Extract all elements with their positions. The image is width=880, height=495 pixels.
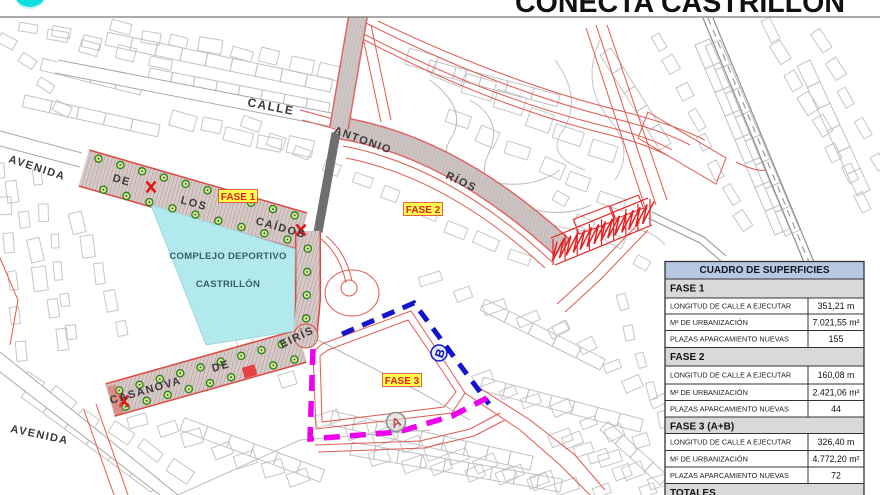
svg-text:7.021,55 m²: 7.021,55 m² [813,317,860,327]
svg-text:M² DE URBANIZACIÓN: M² DE URBANIZACIÓN [670,318,748,327]
svg-text:FASE 2: FASE 2 [670,352,705,363]
svg-text:326,40 m: 326,40 m [818,437,855,447]
svg-text:CASTRILLÓN: CASTRILLÓN [196,278,260,290]
svg-text:160,08 m: 160,08 m [818,370,855,380]
svg-text:FASE 1: FASE 1 [670,284,705,295]
svg-text:FASE 3 (A+B): FASE 3 (A+B) [670,422,734,433]
svg-text:44: 44 [831,404,841,414]
svg-text:LONGITUD DE CALLE A EJECUTAR: LONGITUD DE CALLE A EJECUTAR [670,371,791,380]
svg-text:FASE 2: FASE 2 [406,205,441,216]
svg-text:PLAZAS APARCAMIENTO NUEVAS: PLAZAS APARCAMIENTO NUEVAS [670,404,789,413]
svg-text:TOTALES: TOTALES [670,488,716,495]
svg-text:COMPLEJO DEPORTIVO: COMPLEJO DEPORTIVO [169,251,286,262]
svg-text:M² DE URBANIZACIÓN: M² DE URBANIZACIÓN [670,454,748,463]
svg-text:LONGITUD DE CALLE A EJECUTAR: LONGITUD DE CALLE A EJECUTAR [670,302,791,311]
svg-text:2.421,06 m²: 2.421,06 m² [813,387,860,397]
svg-text:351,21 m: 351,21 m [818,301,855,311]
svg-text:M² DE URBANIZACIÓN: M² DE URBANIZACIÓN [670,388,748,397]
svg-text:155: 155 [829,334,844,344]
svg-text:4.772,20 m²: 4.772,20 m² [813,454,860,464]
svg-text:CONECTA CASTRILLÓN: CONECTA CASTRILLÓN [515,0,845,19]
svg-text:72: 72 [831,470,841,480]
svg-text:FASE 1: FASE 1 [221,192,256,203]
svg-text:PLAZAS APARCAMIENTO NUEVAS: PLAZAS APARCAMIENTO NUEVAS [670,335,789,344]
svg-text:LONGITUD DE CALLE A EJECUTAR: LONGITUD DE CALLE A EJECUTAR [670,438,791,447]
svg-text:FASE 3: FASE 3 [385,376,420,387]
svg-text:CUADRO DE SUPERFICIES: CUADRO DE SUPERFICIES [699,265,829,276]
svg-text:PLAZAS APARCAMIENTO NUEVAS: PLAZAS APARCAMIENTO NUEVAS [670,471,789,480]
